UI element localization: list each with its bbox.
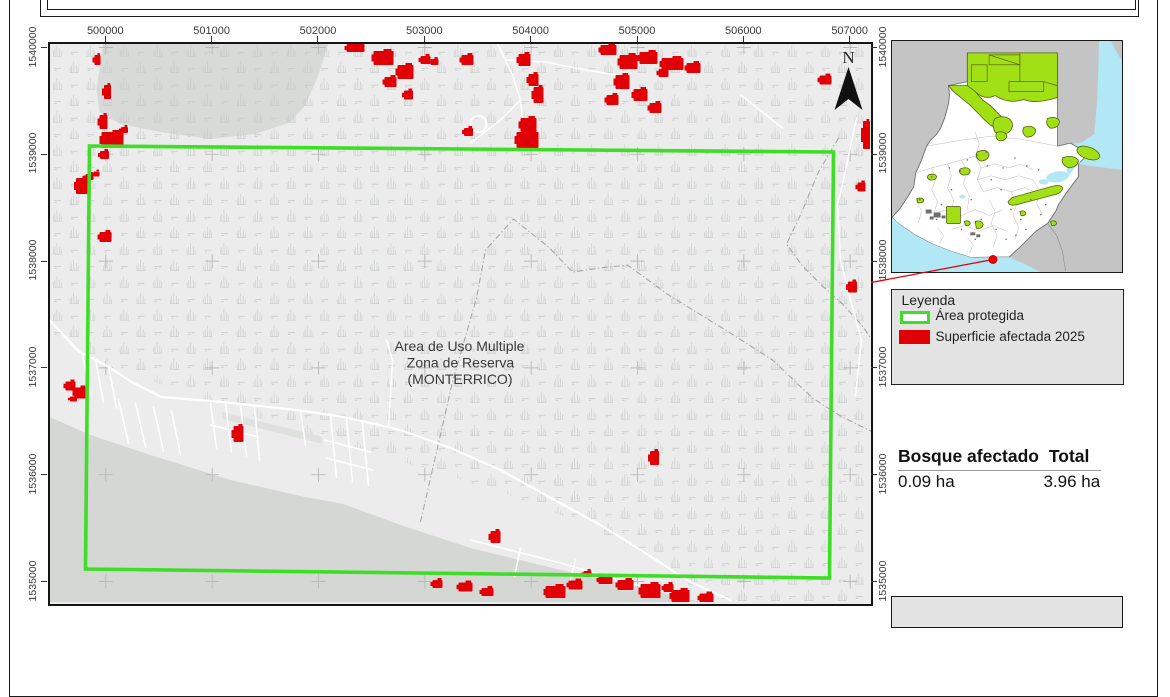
svg-text:Area de Uso Multiple: Area de Uso Multiple xyxy=(394,338,524,354)
svg-text:Zona de Reserva: Zona de Reserva xyxy=(406,355,514,371)
svg-text:N: N xyxy=(842,48,854,67)
svg-text:(MONTERRICO): (MONTERRICO) xyxy=(407,371,512,387)
